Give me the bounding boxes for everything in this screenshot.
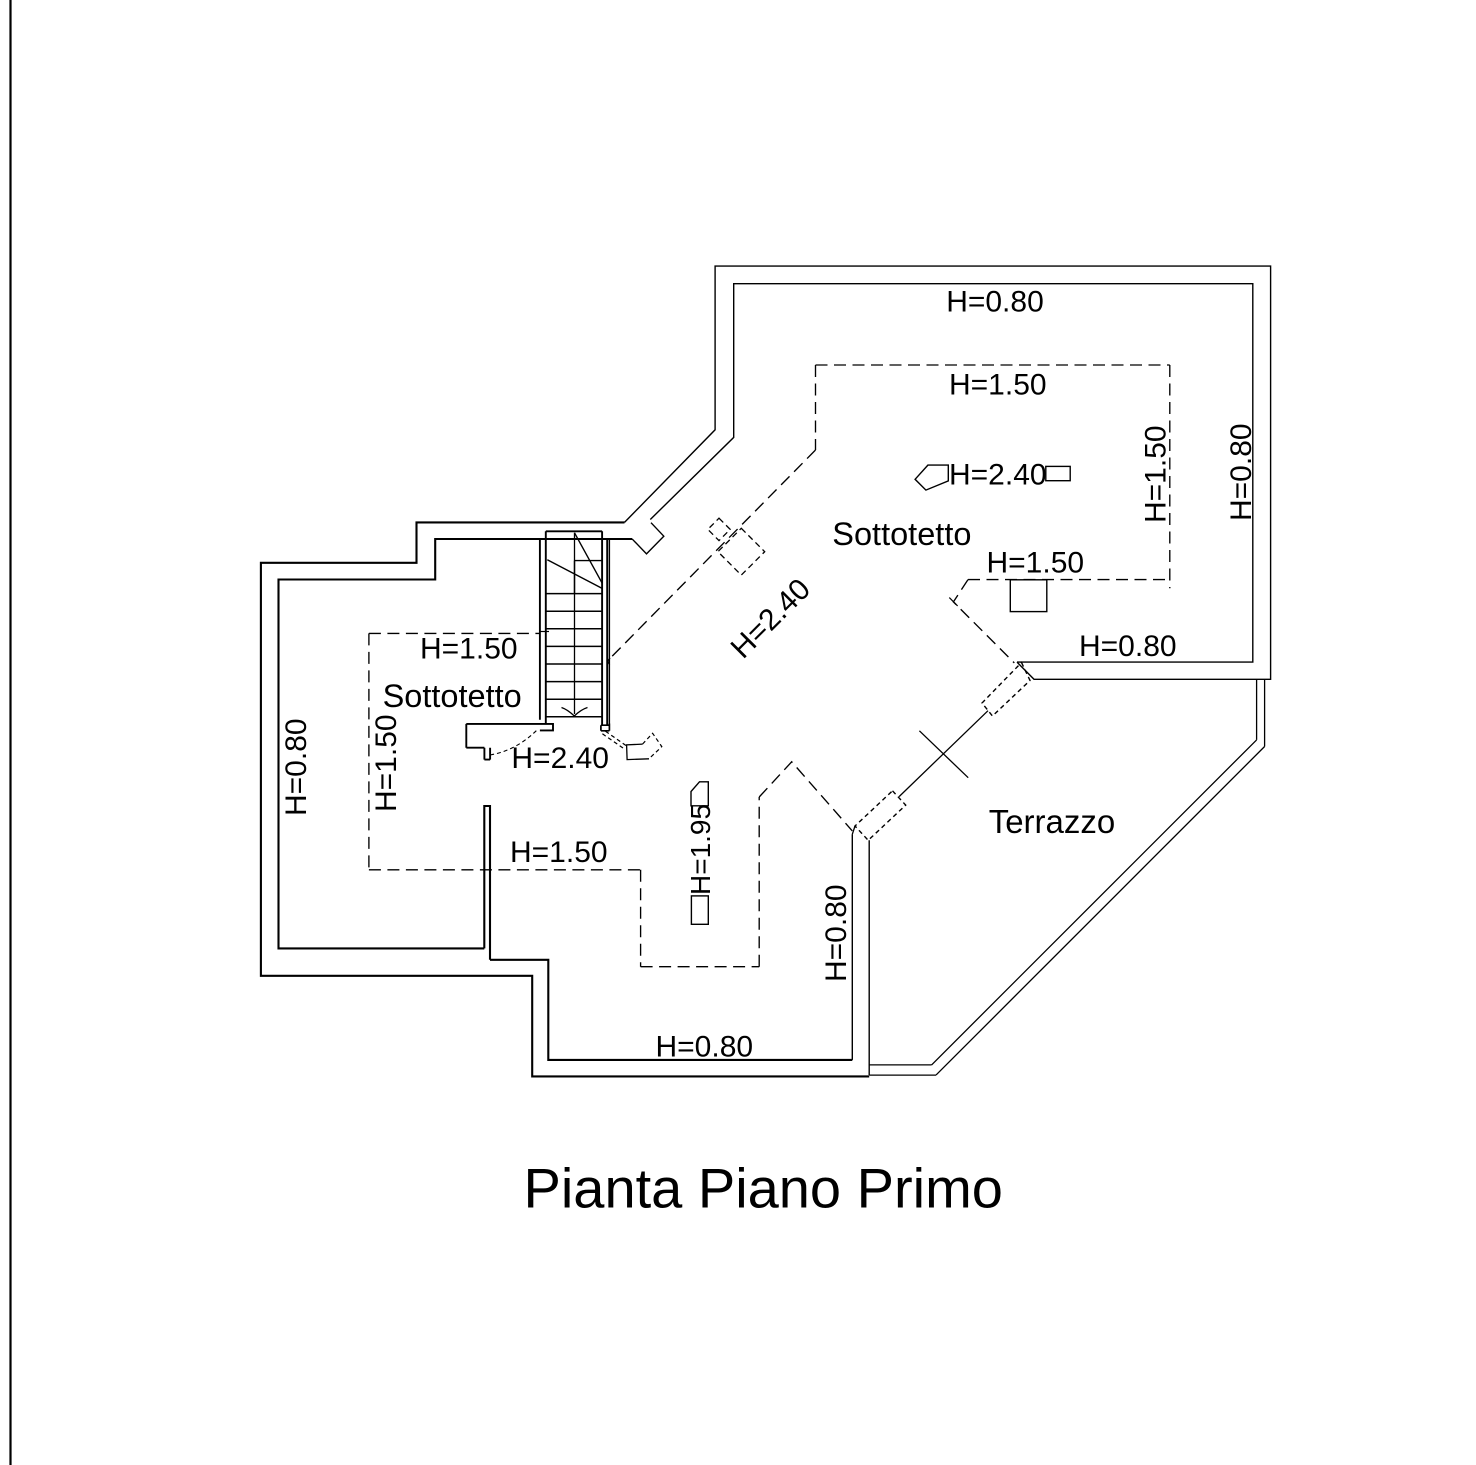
- svg-text:Sottotetto: Sottotetto: [383, 678, 522, 714]
- svg-text:H=1.50: H=1.50: [949, 368, 1047, 401]
- svg-text:H=1.50: H=1.50: [420, 633, 518, 666]
- svg-text:H=1.95: H=1.95: [685, 804, 716, 895]
- svg-text:H=0.80: H=0.80: [1079, 630, 1177, 663]
- svg-text:H=0.80: H=0.80: [280, 718, 313, 816]
- svg-text:H=2.40: H=2.40: [949, 459, 1047, 492]
- svg-text:Terrazzo: Terrazzo: [989, 803, 1116, 840]
- svg-text:Pianta Piano Primo: Pianta Piano Primo: [524, 1156, 1003, 1219]
- svg-text:H=1.50: H=1.50: [370, 714, 403, 812]
- svg-text:H=0.80: H=0.80: [1225, 423, 1258, 521]
- svg-text:H=0.80: H=0.80: [946, 286, 1044, 319]
- svg-text:Sottotetto: Sottotetto: [832, 516, 971, 552]
- svg-text:H=0.80: H=0.80: [820, 884, 853, 982]
- svg-text:H=1.50: H=1.50: [1140, 425, 1173, 523]
- svg-text:H=2.40: H=2.40: [511, 742, 609, 775]
- svg-text:H=0.80: H=0.80: [656, 1031, 754, 1064]
- svg-text:H=1.50: H=1.50: [987, 546, 1085, 579]
- svg-text:H=1.50: H=1.50: [510, 836, 608, 869]
